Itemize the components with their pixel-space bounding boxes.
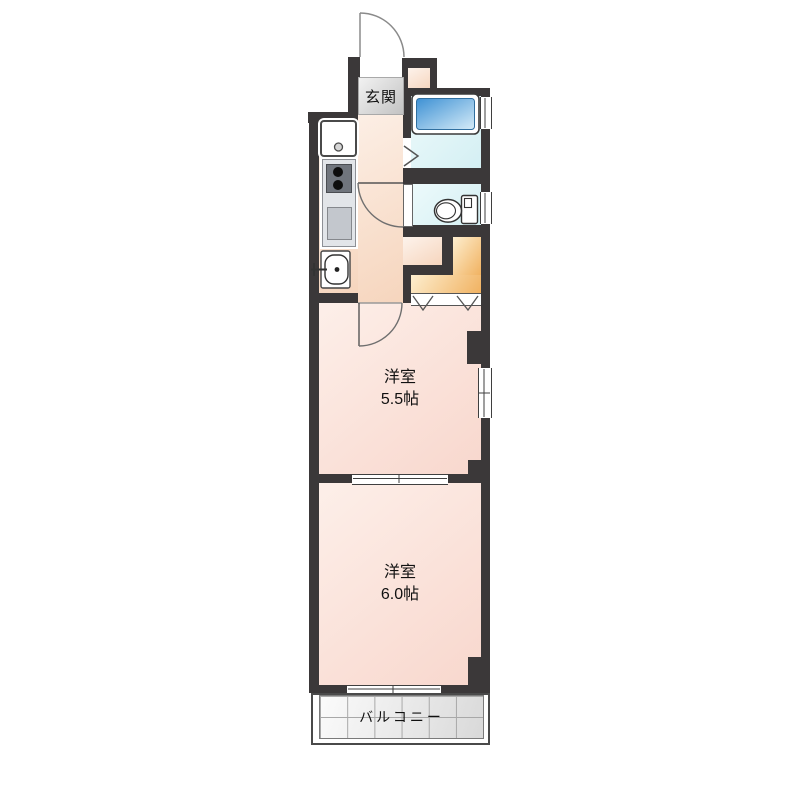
toilet-icon <box>435 196 478 224</box>
bathtub-icon <box>412 94 479 134</box>
bath-folding-door-icon <box>404 146 418 166</box>
stove-burners-icon <box>333 167 343 190</box>
hall-door-swing-icon <box>358 183 403 227</box>
floor-plan: 玄関 バルコニー 洋室 5.5帖 洋室 6.0帖 <box>0 0 800 800</box>
sliding-window-icon <box>348 98 490 693</box>
fixtures-overlay <box>0 0 800 800</box>
room-door-swing-icon <box>358 303 402 346</box>
closet-bifold-door-icon <box>413 296 478 310</box>
washing-machine-drain-icon <box>335 143 343 151</box>
washbasin-icon <box>311 251 350 288</box>
entrance-door-swing-icon <box>360 13 404 57</box>
